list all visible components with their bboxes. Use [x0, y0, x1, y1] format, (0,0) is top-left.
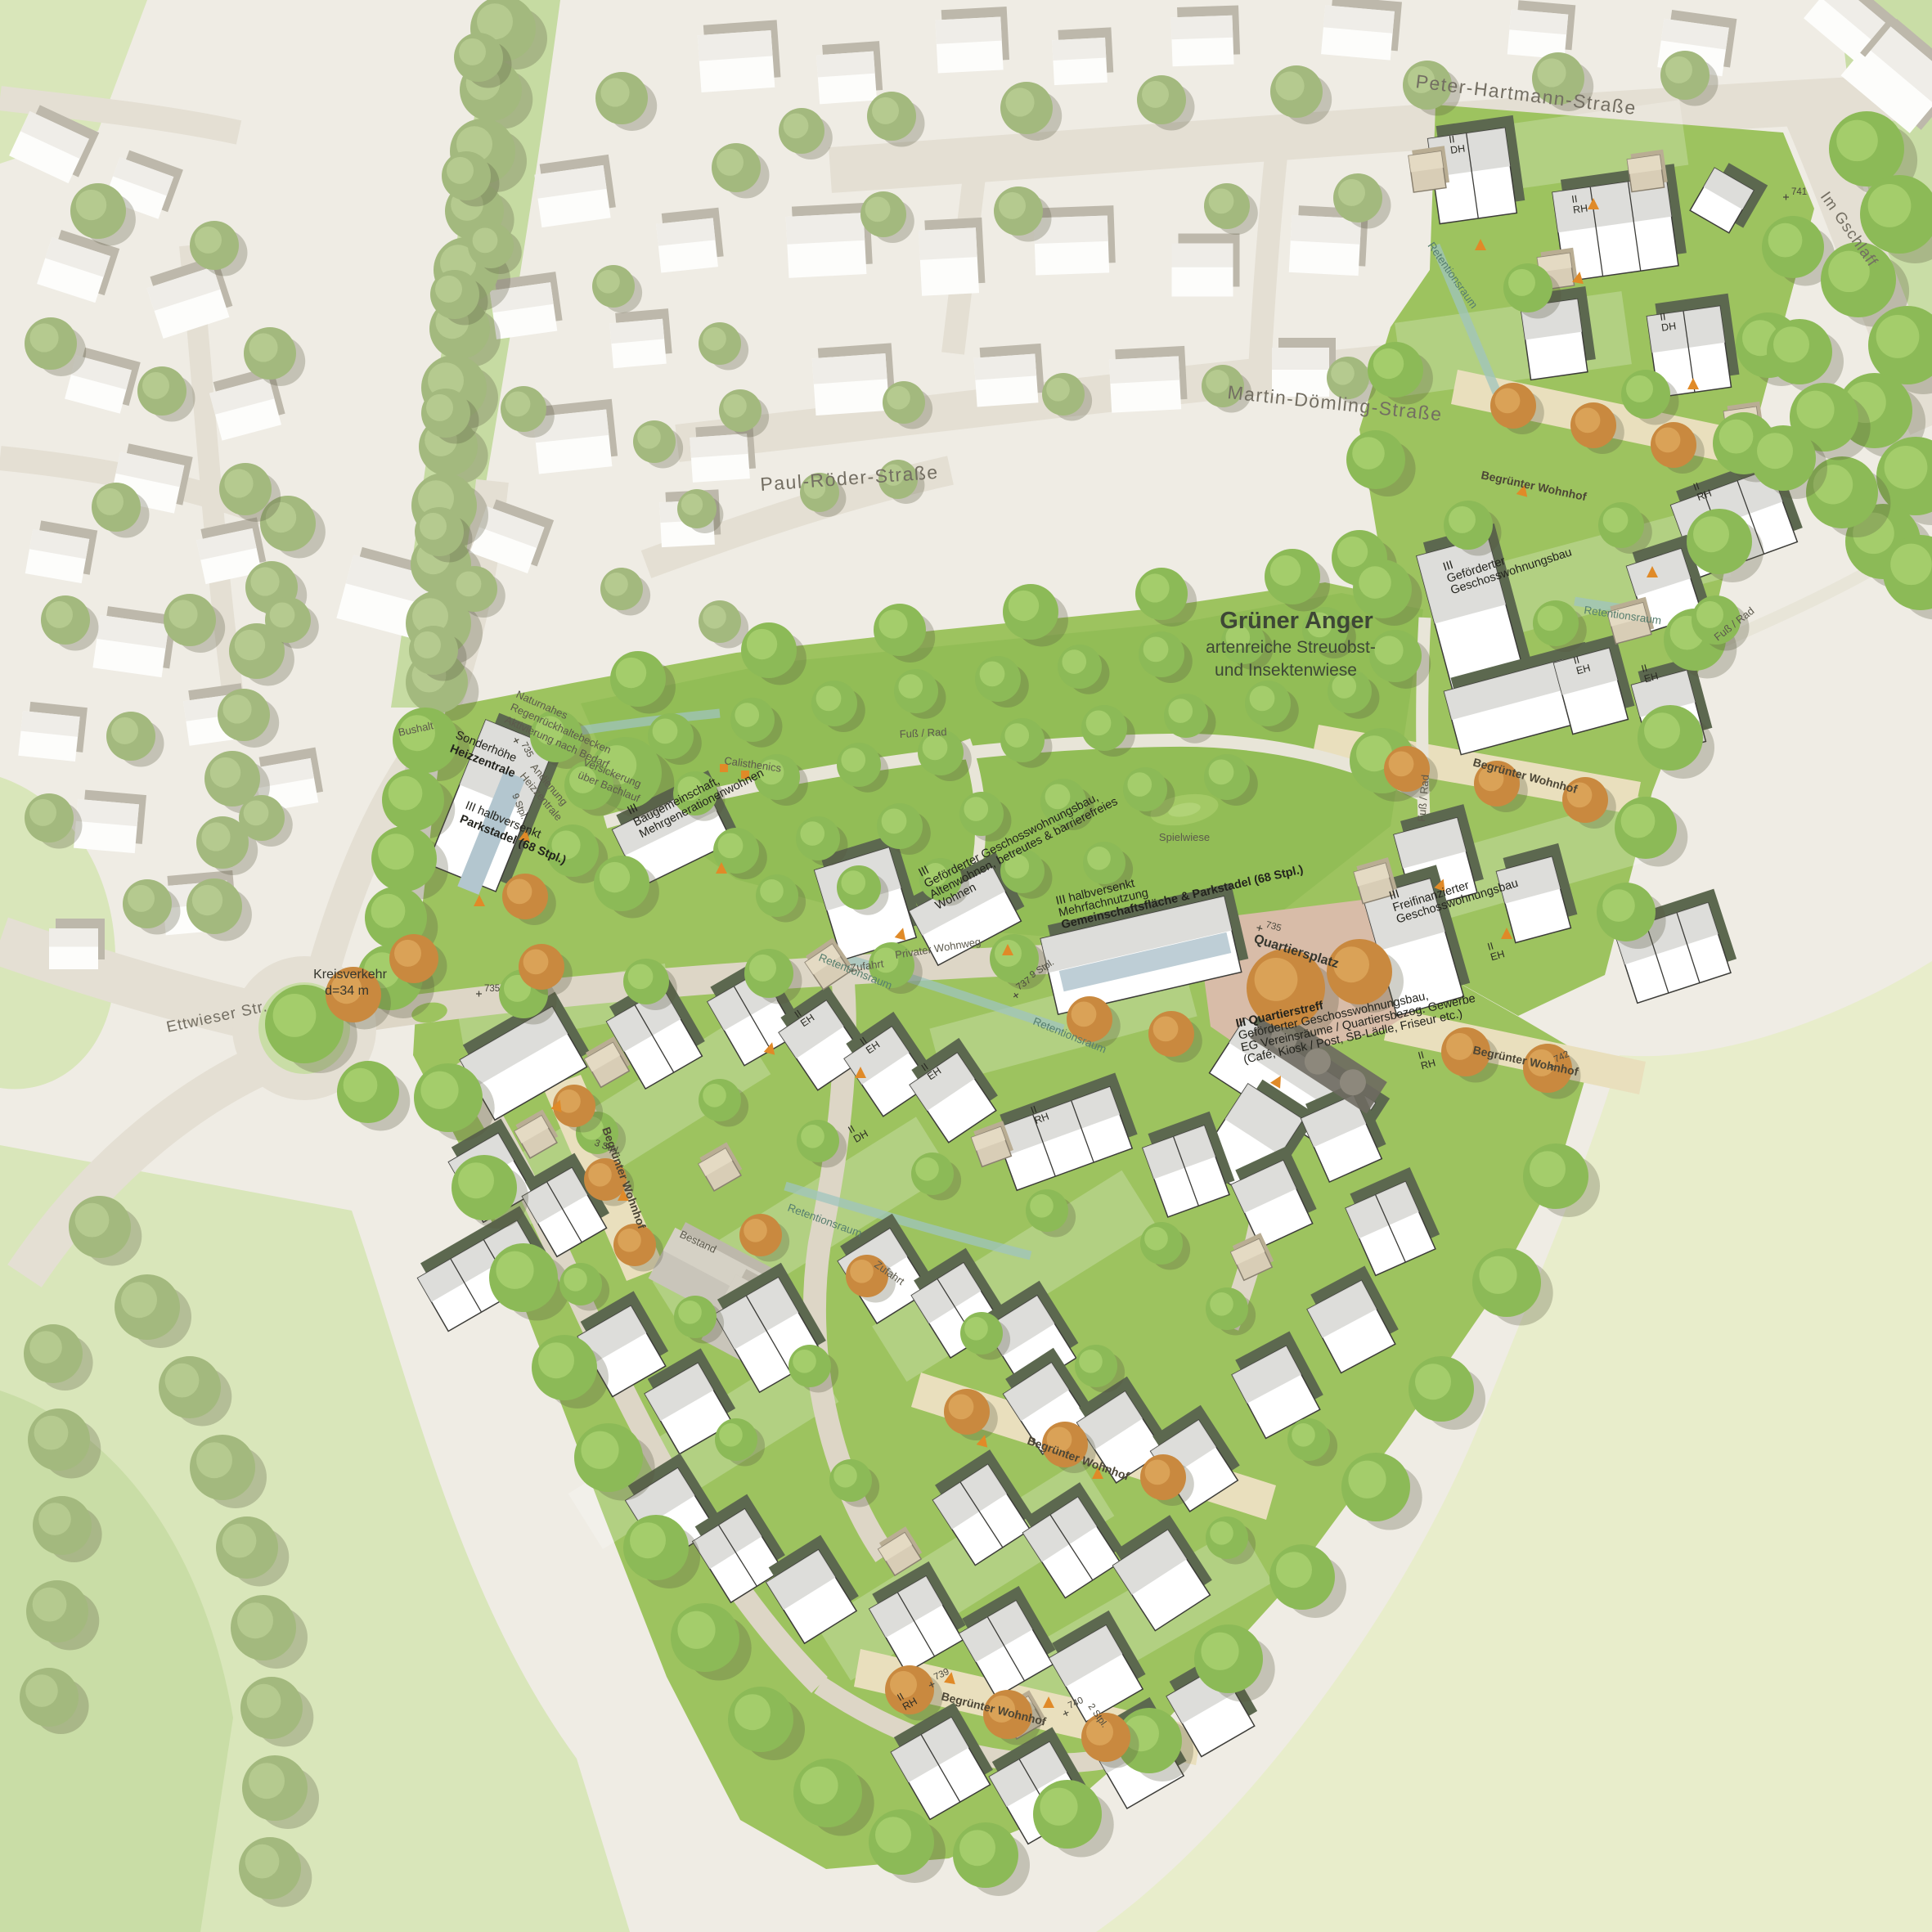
building: [1051, 27, 1113, 85]
building: [1170, 5, 1240, 66]
building: [1108, 346, 1188, 413]
label-fuss-rad: Fuß / Rad: [899, 726, 947, 740]
building: [655, 208, 725, 273]
building: [1321, 0, 1402, 61]
building: [918, 218, 986, 296]
building: [815, 41, 883, 104]
building: [74, 789, 146, 854]
building: [1408, 146, 1450, 192]
building: [533, 155, 618, 227]
site-plan: Peter-Hartmann-Straße Martin-Dömling-Str…: [0, 0, 1932, 1932]
svg-text:RH: RH: [1572, 202, 1588, 215]
label-park-title: Grüner Anger: [1220, 608, 1373, 634]
building: [1627, 150, 1669, 192]
label-park-subtitle-2: und Insektenwiese: [1215, 661, 1357, 680]
label-kreisverkehr-2: d=34 m: [325, 984, 369, 998]
label-park-subtitle-1: artenreiche Streuobst-: [1206, 638, 1376, 657]
building: [973, 344, 1045, 407]
label-spielwiese: Spielwiese: [1159, 831, 1210, 843]
building: [1172, 234, 1240, 297]
svg-text:DH: DH: [1660, 320, 1677, 333]
building: [935, 7, 1010, 74]
svg-text:735: 735: [484, 984, 500, 994]
building: [785, 203, 873, 278]
building: [609, 308, 673, 368]
building: [697, 20, 781, 92]
svg-text:DH: DH: [1449, 142, 1466, 155]
label-kreisverkehr-1: Kreisverkehr: [313, 968, 387, 982]
svg-text:741: 741: [1791, 187, 1807, 197]
building: [49, 919, 105, 969]
